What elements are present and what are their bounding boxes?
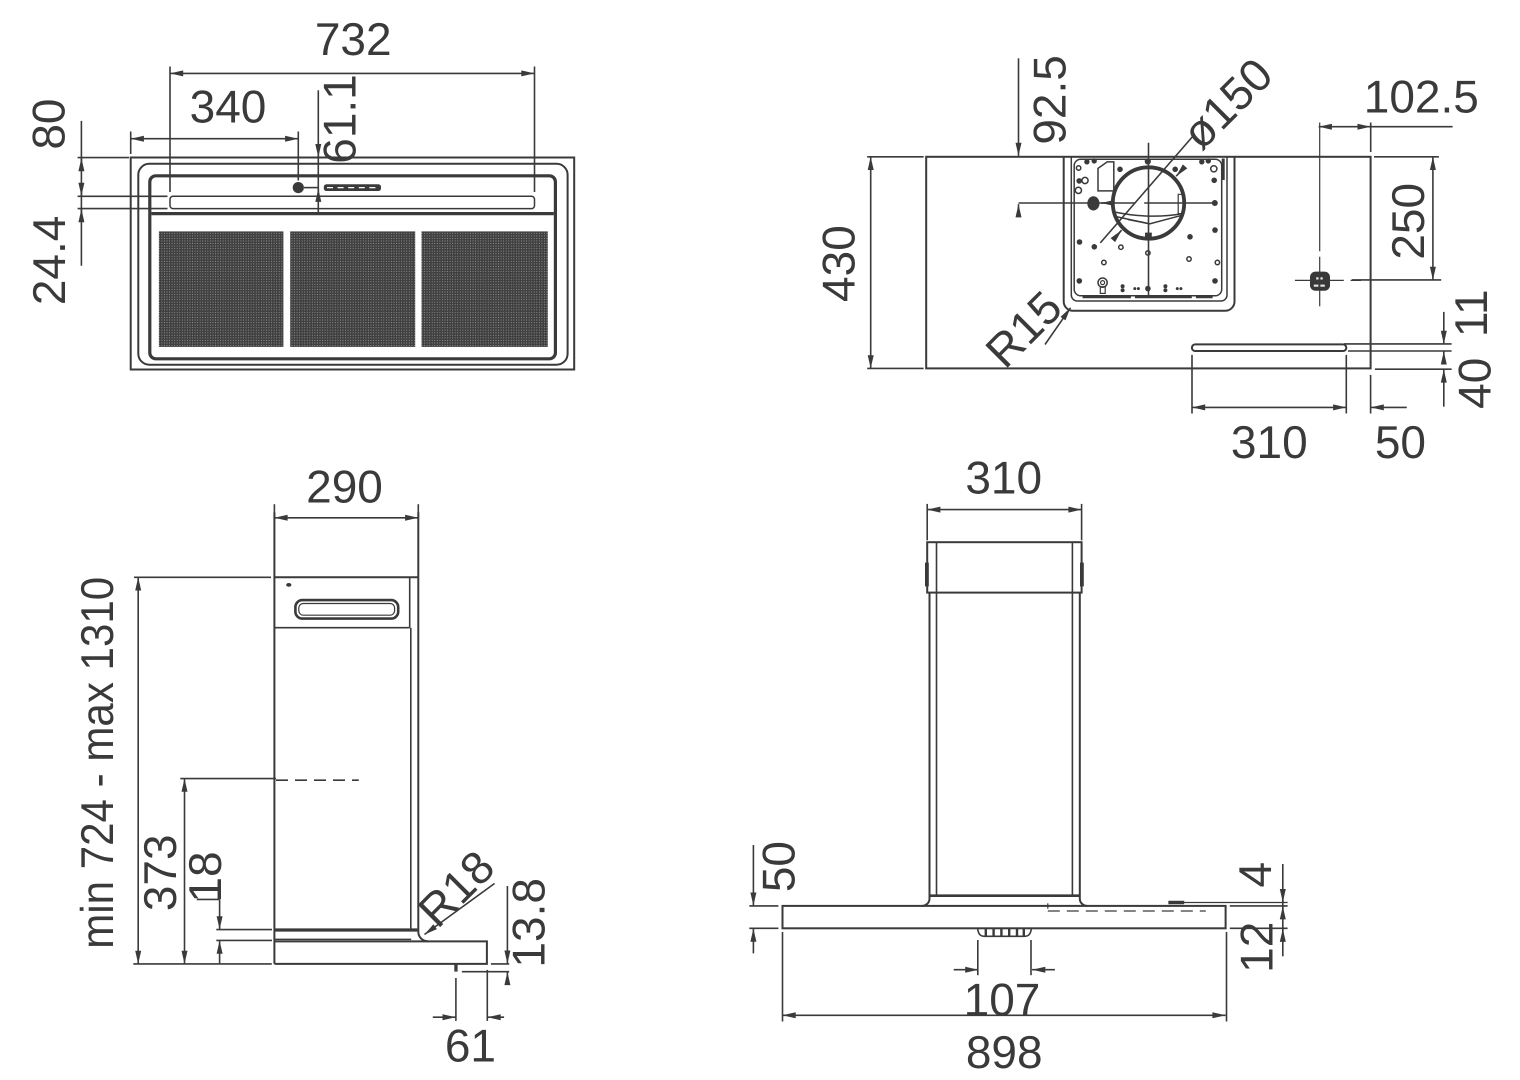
- svg-text:898: 898: [966, 1026, 1043, 1078]
- svg-text:40: 40: [1448, 358, 1500, 409]
- svg-text:102.5: 102.5: [1364, 70, 1479, 122]
- svg-text:min 724 - max 1310: min 724 - max 1310: [71, 577, 123, 949]
- svg-text:61: 61: [445, 1020, 496, 1072]
- svg-text:92.5: 92.5: [1023, 55, 1075, 145]
- svg-text:732: 732: [315, 13, 392, 65]
- svg-text:340: 340: [190, 80, 267, 132]
- svg-text:80: 80: [22, 99, 74, 150]
- svg-text:R18: R18: [408, 840, 504, 936]
- svg-text:61.1: 61.1: [314, 74, 366, 164]
- svg-text:373: 373: [134, 834, 186, 911]
- svg-text:310: 310: [965, 452, 1042, 504]
- svg-text:107: 107: [964, 974, 1041, 1026]
- svg-text:250: 250: [1382, 183, 1434, 260]
- svg-text:13.8: 13.8: [503, 878, 555, 968]
- svg-text:310: 310: [1231, 416, 1308, 468]
- svg-text:50: 50: [1375, 416, 1426, 468]
- svg-text:18: 18: [179, 851, 231, 902]
- svg-text:290: 290: [306, 461, 383, 513]
- svg-text:50: 50: [752, 841, 804, 892]
- svg-text:12: 12: [1231, 922, 1283, 973]
- svg-text:4: 4: [1229, 862, 1281, 888]
- svg-text:R15: R15: [975, 281, 1071, 377]
- svg-text:11: 11: [1445, 289, 1497, 337]
- svg-text:24.4: 24.4: [23, 216, 75, 306]
- svg-text:430: 430: [812, 225, 864, 302]
